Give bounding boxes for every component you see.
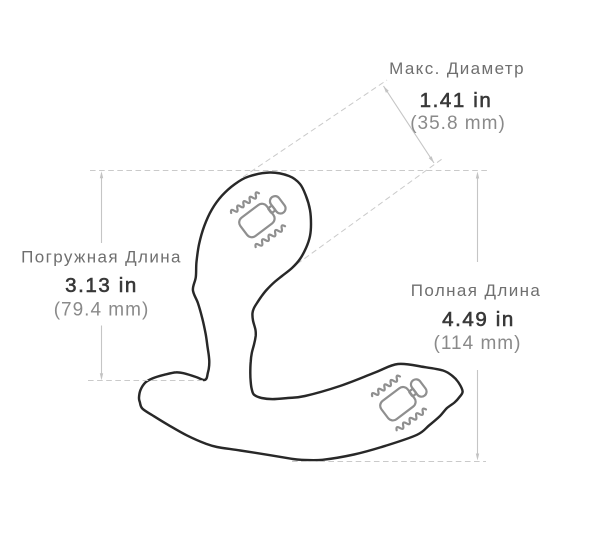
- svg-text:Погружная Длина: Погружная Длина: [21, 248, 182, 267]
- svg-text:(79.4 mm): (79.4 mm): [54, 300, 150, 321]
- svg-text:4.49 in: 4.49 in: [442, 308, 515, 331]
- svg-text:Полная Длина: Полная Длина: [411, 281, 542, 300]
- svg-text:(114 mm): (114 mm): [434, 333, 522, 354]
- svg-text:1.41 in: 1.41 in: [420, 89, 493, 112]
- svg-text:Макс. Диаметр: Макс. Диаметр: [389, 59, 525, 78]
- svg-text:(35.8 mm): (35.8 mm): [410, 113, 506, 134]
- svg-text:3.13 in: 3.13 in: [65, 274, 138, 297]
